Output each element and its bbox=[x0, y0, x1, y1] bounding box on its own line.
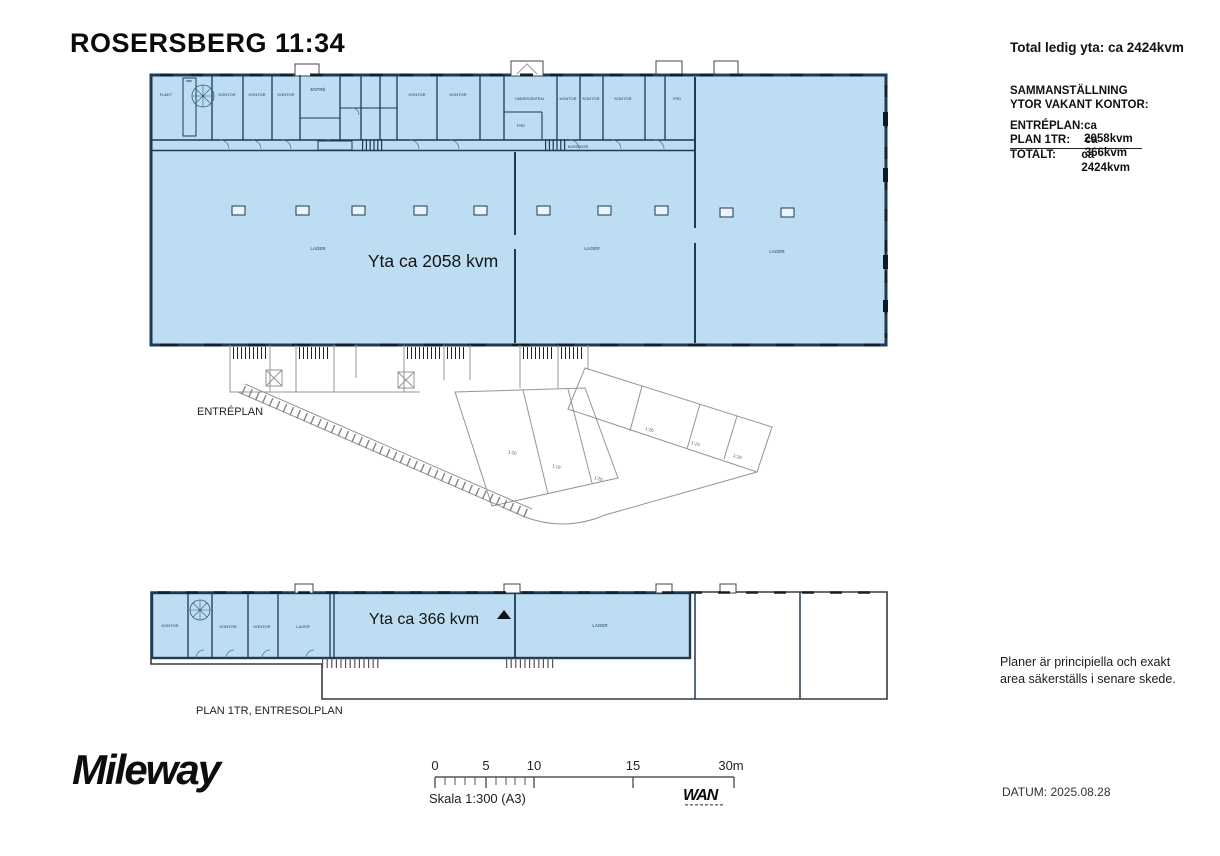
note-line2: area säkerställs i senare skede. bbox=[1000, 671, 1176, 688]
scale-label: Skala 1:300 (A3) bbox=[429, 791, 526, 806]
row-value: ca 366kvm bbox=[1085, 134, 1142, 148]
summary-heading-line2: YTOR VAKANT KONTOR: bbox=[1010, 98, 1149, 112]
svg-text:15: 15 bbox=[626, 758, 640, 773]
room-label: KONTOR bbox=[408, 92, 425, 97]
svg-text:1:19: 1:19 bbox=[552, 463, 562, 470]
plan1tr-caption: PLAN 1TR, ENTRESOLPLAN bbox=[196, 705, 343, 717]
row-value: ca 2058kvm bbox=[1084, 120, 1142, 134]
mileway-logo: Mileway bbox=[72, 746, 219, 794]
room-label: KONTOR bbox=[253, 624, 270, 629]
spiral-stair-spokes bbox=[190, 600, 210, 620]
svg-text:1:20: 1:20 bbox=[508, 449, 518, 456]
row-value: ca 2424kvm bbox=[1081, 149, 1142, 163]
row-label: PLAN 1TR: bbox=[1010, 134, 1085, 148]
svg-text:30m: 30m bbox=[718, 758, 743, 773]
architect-logo-caption bbox=[685, 804, 723, 806]
date-label: DATUM: 2025.08.28 bbox=[1002, 785, 1111, 799]
room-label: ENTRÉ bbox=[311, 87, 326, 92]
plan1tr-area-label: Yta ca 366 kvm bbox=[369, 611, 479, 628]
room-label: KONTOR bbox=[218, 92, 235, 97]
plan-sheet: ROSERSBERG 11:34 Total ledig yta: ca 242… bbox=[0, 0, 1220, 856]
room-label: KONTOR bbox=[582, 96, 599, 101]
summary-table: ENTRÉPLAN: ca 2058kvm PLAN 1TR: ca 366kv… bbox=[1010, 120, 1142, 163]
entreplan-highlight-area bbox=[151, 75, 886, 345]
table-row: ENTRÉPLAN: ca 2058kvm bbox=[1010, 120, 1142, 134]
architect-mark: WAN bbox=[683, 787, 719, 804]
room-label: FLÄKT bbox=[160, 92, 173, 97]
room-label: UNDERCENTRAL bbox=[515, 97, 545, 101]
architect-logo: WAN bbox=[682, 786, 736, 810]
scale-tick-labels: 0 5 10 15 30m bbox=[431, 758, 743, 773]
plan1tr-drawing: KONTOR KONTOR KONTOR LAGER LAGER Yta ca … bbox=[140, 578, 910, 713]
room-label: KONTOR bbox=[161, 623, 178, 628]
svg-text:1:20: 1:20 bbox=[733, 453, 743, 461]
row-label: TOTALT: bbox=[1010, 149, 1081, 163]
note-line1: Planer är principiella och exakt bbox=[1000, 654, 1176, 671]
room-label: KONTOR bbox=[559, 96, 576, 101]
room-label: KORRIDOR bbox=[568, 145, 589, 149]
svg-text:0: 0 bbox=[431, 758, 438, 773]
room-label: LAGER bbox=[769, 249, 785, 254]
disclaimer-note: Planer är principiella och exakt area sä… bbox=[1000, 654, 1176, 688]
svg-text:1:10: 1:10 bbox=[691, 440, 701, 447]
room-label: KONTOR bbox=[277, 92, 294, 97]
room-label: FRD bbox=[517, 123, 525, 128]
room-label: LAGER bbox=[592, 623, 608, 628]
entreplan-drawing: 1:20 1:10 1:20 1:20 1:19 1:20 FLÄKT KONT… bbox=[140, 52, 910, 530]
room-label: KONTOR bbox=[219, 624, 236, 629]
room-label: FRD bbox=[673, 96, 681, 101]
summary-heading-line1: SAMMANSTÄLLNING bbox=[1010, 84, 1149, 98]
room-label: LAGER bbox=[296, 624, 310, 629]
row-label: ENTRÉPLAN: bbox=[1010, 120, 1084, 134]
svg-text:5: 5 bbox=[482, 758, 489, 773]
svg-text:1:20: 1:20 bbox=[645, 426, 655, 433]
room-label: KONTOR bbox=[248, 92, 265, 97]
summary-heading: SAMMANSTÄLLNING YTOR VAKANT KONTOR: bbox=[1010, 84, 1149, 112]
room-label: KONTOR bbox=[449, 92, 466, 97]
room-label: LAGER bbox=[584, 246, 600, 251]
table-row: PLAN 1TR: ca 366kvm bbox=[1010, 134, 1142, 149]
entreplan-caption: ENTRÉPLAN bbox=[197, 406, 263, 418]
entreplan-area-label: Yta ca 2058 kvm bbox=[368, 251, 498, 271]
total-area-label: Total ledig yta: ca 2424kvm bbox=[1010, 40, 1184, 55]
room-label: LAGER bbox=[310, 246, 326, 251]
annex-outline bbox=[230, 345, 772, 524]
ramp-rungs bbox=[243, 390, 528, 514]
table-row: TOTALT: ca 2424kvm bbox=[1010, 149, 1142, 163]
room-label: KONTOR bbox=[614, 96, 631, 101]
svg-text:10: 10 bbox=[527, 758, 541, 773]
